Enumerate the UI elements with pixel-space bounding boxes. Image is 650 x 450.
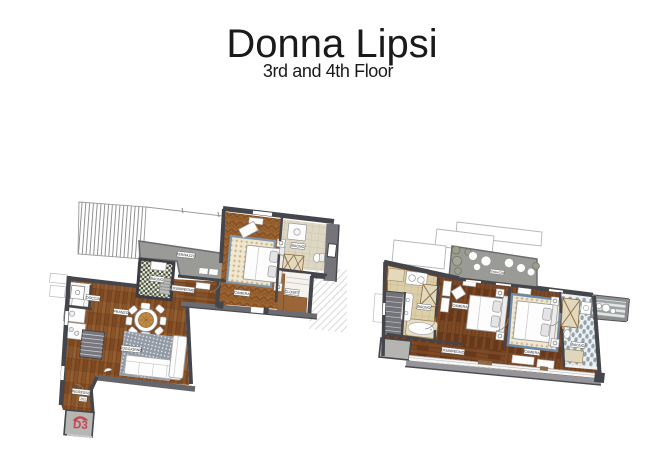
svg-text:101: 101 — [80, 397, 86, 402]
svg-text:D3: D3 — [73, 419, 88, 432]
